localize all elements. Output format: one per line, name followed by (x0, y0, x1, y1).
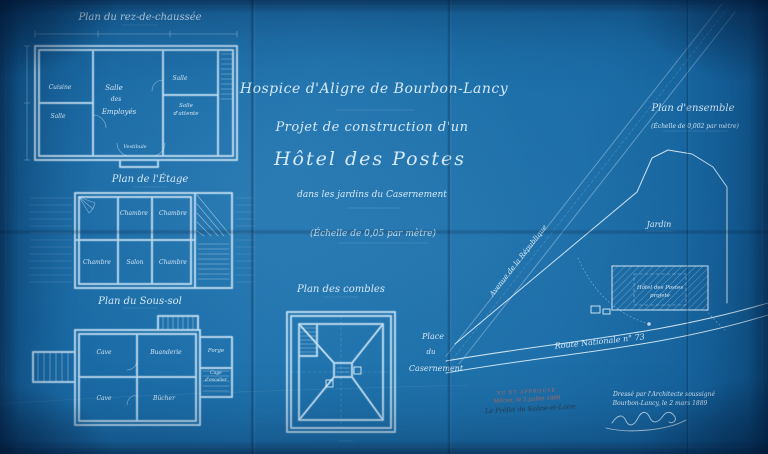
room-label-employes-1: Salle (105, 84, 123, 92)
crease-highlight (0, 385, 468, 404)
blueprint-drawing: Plan du rez-de-chaussée Cuisine Salle Sa… (0, 0, 768, 454)
basement-title: Plan du Sous-sol (97, 296, 182, 307)
site-plan-scale: (Échelle de 0,002 par mètre) (651, 122, 739, 130)
room-label-cuisine: Cuisine (49, 84, 72, 91)
prefect-approval-stamp: VU ET APPROUVÉ Mâcon, le 5 juillet 1889 … (483, 384, 576, 415)
building-label-2: projeté (650, 292, 671, 299)
room-label-chambre-3: Chambre (83, 259, 111, 266)
room-label-salle-right: Salle (172, 75, 188, 82)
title-line-1: Hospice d'Aligre de Bourbon-Lancy (239, 81, 509, 97)
first-floor-title: Plan de l'Étage (111, 173, 189, 185)
room-label-cave-1: Cave (96, 349, 112, 356)
first-floor-details (79, 195, 230, 279)
title-line-4: dans les jardins du Casernement (297, 190, 447, 200)
attic-title: Plan des combles (296, 284, 385, 295)
place-label-1: Place (421, 332, 444, 341)
room-label-cage-2: d'escalier (205, 377, 228, 383)
jardin-label: Jardin (645, 220, 672, 229)
room-label-employes-3: Employés (101, 108, 137, 116)
blueprint-sheet: Plan du rez-de-chaussée Cuisine Salle Sa… (0, 0, 768, 454)
architect-signature-block: Dressé par l'Architecte soussigné Bourbo… (606, 391, 715, 431)
room-label-attente-2: d'attente (174, 111, 200, 117)
attic-plan: Plan des combles (287, 284, 395, 432)
room-label-employes-2: des (111, 96, 121, 103)
title-line-2: Projet de construction d'un (274, 120, 468, 135)
title-scale-note: (Échelle de 0,05 par mètre) (310, 227, 436, 239)
route-label: Route Nationale n° 73 (553, 332, 645, 351)
room-label-buanderie: Buanderie (149, 349, 182, 356)
room-label-chambre-1: Chambre (120, 210, 148, 217)
basement-plan: Plan du Sous-sol Cave Buanderie Forge Ca… (33, 296, 232, 425)
room-label-chambre-2: Chambre (159, 210, 187, 217)
room-label-bucher: Bûcher (152, 395, 176, 402)
first-floor-plan: Plan de l'Étage Chambre Chambre Chambre … (30, 173, 254, 288)
basement-walls (33, 316, 232, 425)
room-label-forge: Forge (207, 348, 225, 354)
site-plan: Plan d'ensemble (Échelle de 0,002 par mè… (409, 4, 768, 373)
room-label-vestibule: Vestibule (123, 144, 146, 150)
room-label-attente-1: Salle (179, 103, 194, 109)
building-label-1: Hôtel des Postes (636, 284, 684, 291)
existing-sheds (591, 306, 610, 314)
ground-floor-plan: Plan du rez-de-chaussée Cuisine Salle Sa… (24, 12, 237, 167)
room-label-cave-2: Cave (96, 395, 112, 402)
basement-walls-glow (33, 316, 232, 425)
place-label-3: Casernement (409, 364, 464, 373)
ground-floor-title: Plan du rez-de-chaussée (77, 12, 201, 23)
room-label-salle-left: Salle (50, 113, 66, 120)
title-line-3: Hôtel des Postes (273, 148, 466, 170)
place-label-2: du (427, 348, 436, 356)
room-label-salon: Salon (126, 259, 143, 266)
stamp-line-1: VU ET APPROUVÉ (496, 385, 557, 396)
site-boundary (455, 150, 727, 344)
room-label-cage-1: Cage (210, 370, 222, 376)
site-plan-title: Plan d'ensemble (650, 103, 734, 114)
architect-signature (606, 412, 686, 431)
architect-line-1: Dressé par l'Architecte soussigné (612, 391, 715, 398)
room-label-chambre-4: Chambre (159, 259, 187, 266)
well-mark (647, 322, 651, 326)
architect-line-2: Bourbon-Lancy, le 2 mars 1889 (612, 400, 708, 407)
